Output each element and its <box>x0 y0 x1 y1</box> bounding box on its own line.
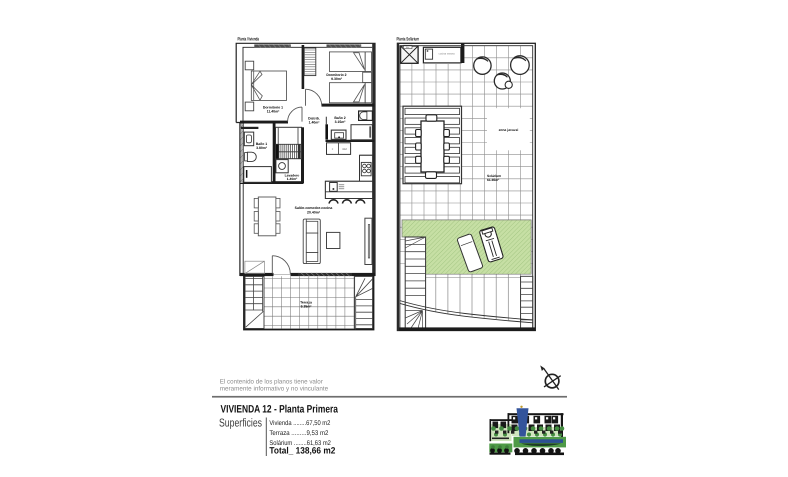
svg-text:lav.: lav. <box>406 46 410 49</box>
svg-text:zona jacuzzi: zona jacuzzi <box>499 128 519 132</box>
svg-text:El contenido de los planos tie: El contenido de los planos tiene valor <box>220 378 324 385</box>
svg-text:Terraza .........9,53 m2: Terraza .........9,53 m2 <box>269 430 328 437</box>
svg-text:Total_ 138,66 m2: Total_ 138,66 m2 <box>269 446 335 456</box>
svg-text:Planta Solárium: Planta Solárium <box>397 37 420 43</box>
svg-text:VIVIENDA 12 - Planta Primera: VIVIENDA 12 - Planta Primera <box>221 404 339 416</box>
svg-text:20.40m²: 20.40m² <box>307 210 321 214</box>
svg-text:Planta Vivienda: Planta Vivienda <box>238 37 260 43</box>
svg-text:Vivienda ........67,50 m2: Vivienda ........67,50 m2 <box>269 420 330 427</box>
svg-text:Superficies: Superficies <box>219 418 262 430</box>
svg-text:cocina verano: cocina verano <box>439 52 456 55</box>
svg-text:Salón-comedor-cocina: Salón-comedor-cocina <box>295 206 333 210</box>
svg-text:11.40m²: 11.40m² <box>267 109 280 113</box>
svg-text:WM: WM <box>342 148 347 151</box>
svg-text:9.30m²: 9.30m² <box>331 77 343 81</box>
svg-text:61.65m²: 61.65m² <box>487 178 500 182</box>
svg-text:1.40m²: 1.40m² <box>287 177 298 181</box>
svg-text:9.35m²: 9.35m² <box>301 304 313 308</box>
svg-text:meramente informativo y no vin: meramente informativo y no vinculante <box>220 386 329 393</box>
svg-text:3.15m²: 3.15m² <box>335 120 347 124</box>
svg-text:1.40m²: 1.40m² <box>309 120 321 124</box>
svg-text:3.80m²: 3.80m² <box>256 146 268 150</box>
